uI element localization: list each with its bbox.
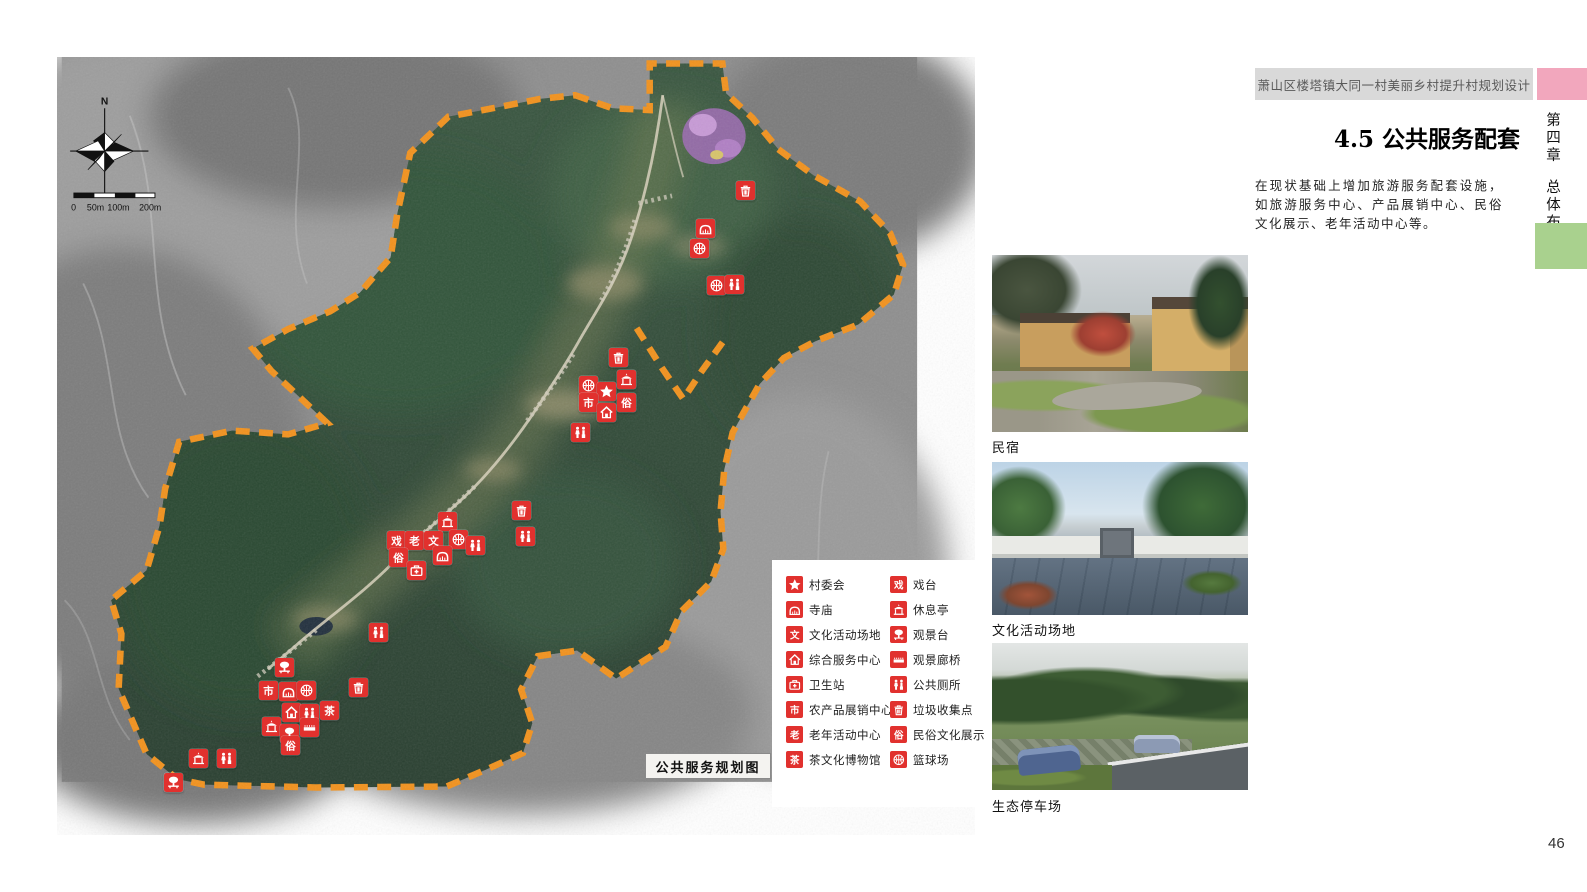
public-service-plan-map: N 0 50m 100m 200m 市俗戏老文俗市茶俗 村委会戏戏台寺庙休息亭文… (57, 57, 975, 835)
bridge-icon (890, 651, 907, 668)
map-marker-shi-icon: 市 (259, 681, 278, 700)
map-title-label: 公共服务规划图 (645, 753, 771, 779)
map-marker-su-icon: 俗 (617, 393, 636, 412)
svg-text:戏: 戏 (893, 579, 904, 591)
temple-icon (786, 601, 803, 618)
page-number: 46 (1548, 835, 1565, 852)
svg-text:俗: 俗 (620, 396, 632, 409)
photo-caption-culture-plaza: 文化活动场地 (992, 620, 1076, 639)
wen-icon: 文 (786, 626, 803, 643)
legend-item-label: 茶文化博物馆 (809, 752, 881, 768)
svg-text:茶: 茶 (323, 704, 335, 717)
legend-item: 观景台 (890, 626, 994, 643)
legend-item-label: 篮球场 (913, 752, 949, 768)
svg-text:戏: 戏 (390, 534, 402, 547)
chapter-green-block (1535, 223, 1587, 269)
project-title-bar: 萧山区楼塔镇大同一村美丽乡村提升村规划设计 (1255, 68, 1533, 100)
svg-text:市: 市 (583, 396, 594, 409)
map-marker-cha-icon: 茶 (320, 701, 339, 720)
map-marker-basketball-icon (449, 530, 468, 549)
svg-text:茶: 茶 (789, 754, 800, 766)
star-icon (786, 576, 803, 593)
map-marker-toilet-icon (516, 527, 535, 546)
svg-text:俗: 俗 (893, 729, 904, 741)
legend-item: 戏戏台 (890, 576, 994, 593)
map-marker-temple-icon (433, 546, 452, 565)
svg-text:市: 市 (263, 684, 274, 697)
house-icon (786, 651, 803, 668)
map-marker-lao-icon: 老 (405, 531, 424, 550)
map-marker-temple-icon (696, 219, 715, 238)
map-marker-xi-icon: 戏 (387, 531, 406, 550)
svg-text:文: 文 (427, 534, 439, 547)
map-marker-pavilion-icon (262, 717, 281, 736)
legend-item: 公共厕所 (890, 676, 994, 693)
svg-text:俗: 俗 (284, 739, 296, 752)
map-marker-pavilion-icon (438, 512, 457, 531)
section-paragraph: 在现状基础上增加旅游服务配套设施，如旅游服务中心、产品展销中心、民俗文化展示、老… (1255, 176, 1503, 233)
map-marker-su-icon: 俗 (389, 548, 408, 567)
lao-icon: 老 (786, 726, 803, 743)
map-legend: 村委会戏戏台寺庙休息亭文文化活动场地观景台综合服务中心观景廊桥卫生站公共厕所市农… (772, 560, 994, 807)
legend-item-label: 戏台 (913, 577, 937, 593)
legend-item: 综合服务中心 (786, 651, 886, 668)
photo-caption-guesthouse: 民宿 (992, 437, 1020, 456)
health-icon (786, 676, 803, 693)
legend-item: 村委会 (786, 576, 886, 593)
map-marker-basketball-icon (707, 276, 726, 295)
legend-item-label: 村委会 (809, 577, 845, 593)
section-title: 4.5 公共服务配套 (1255, 120, 1520, 154)
map-marker-shi-icon: 市 (579, 393, 598, 412)
map-marker-toilet-icon (571, 423, 590, 442)
shi-icon: 市 (786, 701, 803, 718)
legend-item-label: 观景廊桥 (913, 652, 961, 668)
legend-item: 卫生站 (786, 676, 886, 693)
map-marker-toilet-icon (217, 749, 236, 768)
chapter-number: 第四章 (1542, 112, 1563, 165)
map-marker-star-icon (597, 382, 616, 401)
pavilion-icon (890, 601, 907, 618)
map-marker-basketball-icon (579, 376, 598, 395)
su-icon: 俗 (890, 726, 907, 743)
map-marker-house-icon (282, 703, 301, 722)
legend-item-label: 文化活动场地 (809, 627, 881, 643)
svg-text:市: 市 (790, 704, 800, 716)
cha-icon: 茶 (786, 751, 803, 768)
map-marker-trash-icon (609, 348, 628, 367)
map-marker-trash-icon (349, 678, 368, 697)
svg-text:100m: 100m (107, 203, 129, 213)
map-marker-trash-icon (512, 501, 531, 520)
svg-text:200m: 200m (139, 203, 161, 213)
legend-item: 茶茶文化博物馆 (786, 751, 886, 768)
svg-text:0: 0 (71, 203, 76, 213)
legend-item-label: 老年活动中心 (809, 727, 881, 743)
legend-item: 观景廊桥 (890, 651, 994, 668)
photo-culture-plaza (992, 462, 1248, 615)
legend-item: 老老年活动中心 (786, 726, 886, 743)
svg-text:老: 老 (789, 729, 800, 741)
svg-text:俗: 俗 (392, 551, 404, 564)
legend-item-label: 垃圾收集点 (913, 702, 973, 718)
legend-item-label: 卫生站 (809, 677, 845, 693)
map-marker-toilet-icon (725, 275, 744, 294)
viewpoint-icon (890, 626, 907, 643)
map-marker-health-icon (407, 561, 426, 580)
map-marker-pavilion-icon (189, 749, 208, 768)
legend-item: 垃圾收集点 (890, 701, 994, 718)
legend-item: 俗民俗文化展示 (890, 726, 994, 743)
map-marker-pavilion-icon (617, 370, 636, 389)
map-marker-house-icon (597, 403, 616, 422)
map-marker-basketball-icon (297, 681, 316, 700)
map-marker-su-icon: 俗 (281, 736, 300, 755)
chapter-pink-block (1537, 68, 1587, 100)
legend-item-label: 休息亭 (913, 602, 949, 618)
legend-item-label: 寺庙 (809, 602, 833, 618)
legend-item: 市农产品展销中心 (786, 701, 886, 718)
map-marker-trash-icon (736, 181, 755, 200)
map-marker-temple-icon (279, 682, 298, 701)
svg-text:文: 文 (789, 629, 800, 641)
legend-item: 篮球场 (890, 751, 994, 768)
photo-guesthouse (992, 255, 1248, 432)
map-marker-viewpoint-icon (275, 658, 294, 677)
xi-icon: 戏 (890, 576, 907, 593)
map-marker-toilet-icon (369, 623, 388, 642)
legend-item: 休息亭 (890, 601, 994, 618)
map-marker-basketball-icon (690, 239, 709, 258)
map-marker-bridge-icon (300, 718, 319, 737)
map-marker-toilet-icon (466, 536, 485, 555)
legend-item-label: 观景台 (913, 627, 949, 643)
legend-item-label: 民俗文化展示 (913, 727, 985, 743)
svg-text:老: 老 (408, 534, 420, 547)
basketball-icon (890, 751, 907, 768)
legend-item-label: 公共厕所 (913, 677, 961, 693)
legend-item-label: 农产品展销中心 (809, 702, 893, 718)
svg-text:50m: 50m (87, 203, 104, 213)
toilet-icon (890, 676, 907, 693)
photo-caption-eco-parking: 生态停车场 (992, 796, 1062, 815)
legend-item: 文文化活动场地 (786, 626, 886, 643)
compass-north-label: N (101, 97, 108, 108)
legend-item: 寺庙 (786, 601, 886, 618)
photo-eco-parking (992, 643, 1248, 790)
legend-item-label: 综合服务中心 (809, 652, 881, 668)
map-marker-viewpoint-icon (164, 773, 183, 792)
trash-icon (890, 701, 907, 718)
